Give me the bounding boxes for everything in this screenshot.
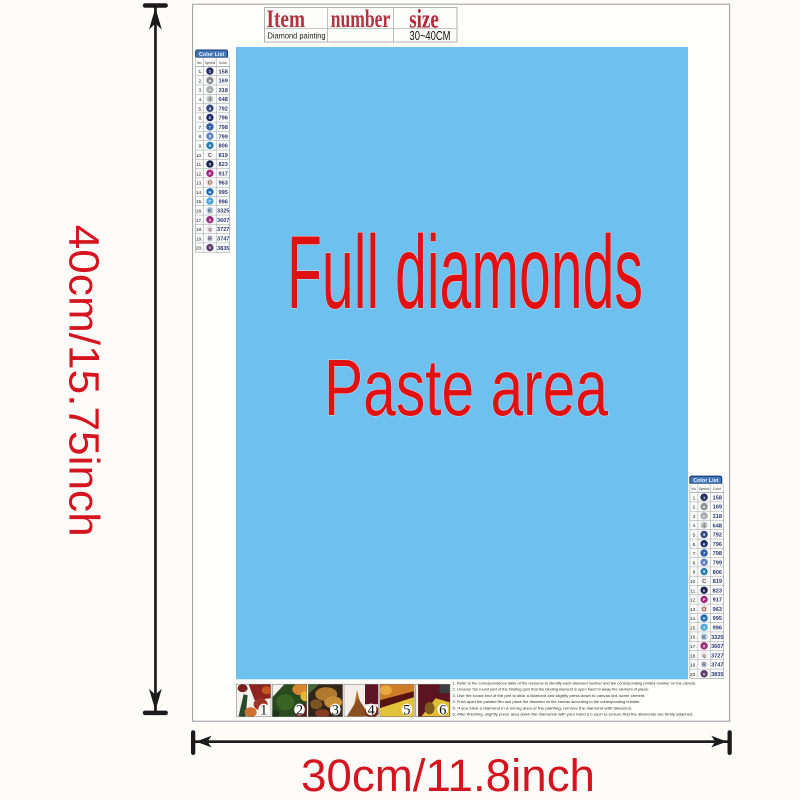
svg-text:H: H (208, 189, 211, 194)
svg-text:3835: 3835 (217, 246, 229, 252)
svg-text:No.: No. (197, 61, 202, 65)
svg-text:158: 158 (219, 69, 228, 75)
svg-text:10.: 10. (690, 579, 697, 585)
svg-text:Color List: Color List (199, 52, 224, 58)
svg-text:3.: 3. (693, 514, 697, 520)
svg-text:3. Use the round end of: 3. Use the round end of the pen to stick… (453, 693, 646, 698)
svg-text:3747: 3747 (711, 663, 723, 669)
svg-text:5. If you stick a diamond: 5. If you stick a diamond in a wrong are… (453, 705, 633, 710)
svg-text:823: 823 (713, 588, 722, 594)
svg-text:996: 996 (713, 626, 722, 632)
svg-text:16.: 16. (196, 209, 203, 215)
svg-text:318: 318 (219, 88, 228, 94)
svg-text:19.: 19. (196, 236, 203, 242)
svg-text:169: 169 (713, 505, 722, 511)
svg-text:6. After finishing, slightl: 6. After finishing, slightly press area … (453, 712, 694, 717)
svg-text:13.: 13. (196, 181, 203, 187)
svg-text:X: X (209, 217, 212, 222)
svg-text:R: R (208, 236, 212, 242)
svg-text:3325: 3325 (217, 209, 229, 215)
svg-text:6.: 6. (693, 542, 697, 548)
svg-text:11.: 11. (690, 588, 696, 594)
svg-text:5: 5 (403, 702, 410, 718)
svg-text:798: 798 (219, 125, 228, 131)
svg-text:648: 648 (713, 523, 722, 529)
svg-text:3: 3 (332, 702, 339, 718)
svg-text:Q: Q (703, 653, 706, 658)
svg-text:Q: Q (208, 227, 211, 232)
svg-text:806: 806 (219, 144, 228, 150)
svg-text:12.: 12. (196, 171, 203, 177)
svg-text:Color: Color (219, 61, 228, 65)
svg-text:5.: 5. (693, 533, 697, 539)
svg-text:3607: 3607 (711, 644, 723, 650)
svg-text:12.: 12. (690, 598, 697, 604)
svg-text:Full diamonds: Full diamonds (287, 215, 643, 331)
svg-text:963: 963 (713, 607, 722, 613)
svg-text:30~40CM: 30~40CM (410, 29, 451, 43)
svg-text:Paste area: Paste area (324, 343, 608, 432)
svg-text:6: 6 (439, 702, 446, 718)
svg-text:917: 917 (713, 598, 722, 604)
svg-text:14.: 14. (196, 190, 203, 196)
svg-text:4: 4 (703, 523, 706, 529)
svg-text:20.: 20. (690, 672, 697, 678)
svg-text:158: 158 (713, 495, 722, 501)
svg-text:995: 995 (713, 616, 722, 622)
svg-text:9.: 9. (693, 570, 697, 576)
svg-text:K: K (208, 209, 212, 215)
svg-text:number: number (331, 6, 391, 33)
svg-text:796: 796 (219, 116, 228, 122)
svg-text:4: 4 (208, 97, 211, 103)
svg-text:15.: 15. (196, 199, 203, 205)
svg-text:3835: 3835 (711, 672, 723, 678)
svg-text:4: 4 (367, 702, 375, 718)
svg-text:4.: 4. (693, 523, 697, 529)
svg-text:5.: 5. (198, 106, 202, 112)
svg-text:P: P (703, 597, 706, 602)
svg-text:799: 799 (713, 560, 722, 566)
svg-text:O: O (702, 607, 706, 613)
svg-text:1.: 1. (198, 69, 202, 75)
svg-text:1. Refer to the correspond: 1. Refer to the correspondence table of … (453, 680, 697, 685)
svg-text:648: 648 (219, 97, 228, 103)
svg-text:3.: 3. (198, 88, 202, 94)
svg-text:3747: 3747 (217, 236, 229, 242)
svg-text:917: 917 (219, 171, 228, 177)
svg-text:P: P (209, 171, 212, 176)
svg-text:792: 792 (713, 533, 722, 539)
svg-text:Symbol: Symbol (699, 487, 710, 491)
svg-text:169: 169 (219, 79, 228, 85)
svg-text:K: K (702, 635, 706, 641)
svg-text:19.: 19. (690, 663, 697, 669)
svg-text:9.: 9. (198, 143, 202, 149)
svg-text:O: O (208, 181, 212, 187)
svg-text:8.: 8. (198, 134, 202, 140)
svg-text:V: V (703, 671, 706, 676)
svg-text:806: 806 (713, 570, 722, 576)
svg-text:11.: 11. (196, 162, 202, 168)
svg-text:H: H (703, 616, 706, 621)
svg-text:3727: 3727 (217, 227, 229, 233)
svg-text:2.: 2. (693, 505, 697, 511)
svg-text:X: X (703, 643, 706, 648)
svg-text:20.: 20. (196, 246, 203, 252)
svg-text:796: 796 (713, 542, 722, 548)
svg-text:14.: 14. (690, 616, 697, 622)
svg-text:7.: 7. (693, 551, 697, 557)
svg-text:798: 798 (713, 551, 722, 557)
svg-text:18.: 18. (690, 653, 697, 659)
svg-text:3727: 3727 (711, 653, 723, 659)
svg-text:No.: No. (691, 487, 696, 491)
svg-text:40cm/15.75inch: 40cm/15.75inch (60, 225, 108, 537)
svg-text:10.: 10. (196, 153, 203, 159)
svg-text:Diamond painting: Diamond painting (268, 31, 326, 41)
svg-text:963: 963 (219, 181, 228, 187)
svg-text:17.: 17. (690, 644, 697, 650)
svg-text:995: 995 (219, 190, 228, 196)
svg-text:2.: 2. (198, 78, 202, 84)
svg-text:2. Uncover the round part: 2. Uncover the round part of the binding… (453, 687, 650, 692)
svg-text:13.: 13. (690, 607, 697, 613)
svg-text:1.: 1. (693, 495, 697, 501)
svg-text:3325: 3325 (711, 635, 723, 641)
svg-text:R: R (702, 663, 706, 669)
svg-text:823: 823 (219, 162, 228, 168)
svg-text:C: C (702, 579, 706, 585)
svg-text:Color: Color (713, 487, 722, 491)
svg-text:318: 318 (713, 514, 722, 520)
svg-text:4.: 4. (198, 97, 202, 103)
svg-text:15.: 15. (690, 625, 697, 631)
svg-text:7.: 7. (198, 125, 202, 131)
svg-text:3607: 3607 (217, 218, 229, 224)
svg-text:V: V (209, 245, 212, 250)
svg-text:16.: 16. (690, 635, 697, 641)
svg-text:6.: 6. (198, 116, 202, 122)
svg-text:2: 2 (296, 702, 303, 718)
svg-text:792: 792 (219, 106, 228, 112)
svg-text:C: C (208, 153, 212, 159)
svg-text:18.: 18. (196, 227, 203, 233)
svg-text:Color List: Color List (693, 478, 718, 484)
svg-text:Item: Item (267, 6, 306, 33)
svg-text:4. Push apart the painted: 4. Push apart the painted film and place… (453, 699, 641, 704)
svg-text:30cm/11.8inch: 30cm/11.8inch (301, 750, 595, 800)
svg-text:8.: 8. (693, 560, 697, 566)
svg-text:996: 996 (219, 199, 228, 205)
svg-text:1: 1 (260, 702, 267, 718)
svg-text:Symbol: Symbol (205, 61, 216, 65)
svg-text:819: 819 (219, 153, 228, 159)
svg-text:799: 799 (219, 134, 228, 140)
svg-text:17.: 17. (196, 218, 203, 224)
svg-text:819: 819 (713, 579, 722, 585)
